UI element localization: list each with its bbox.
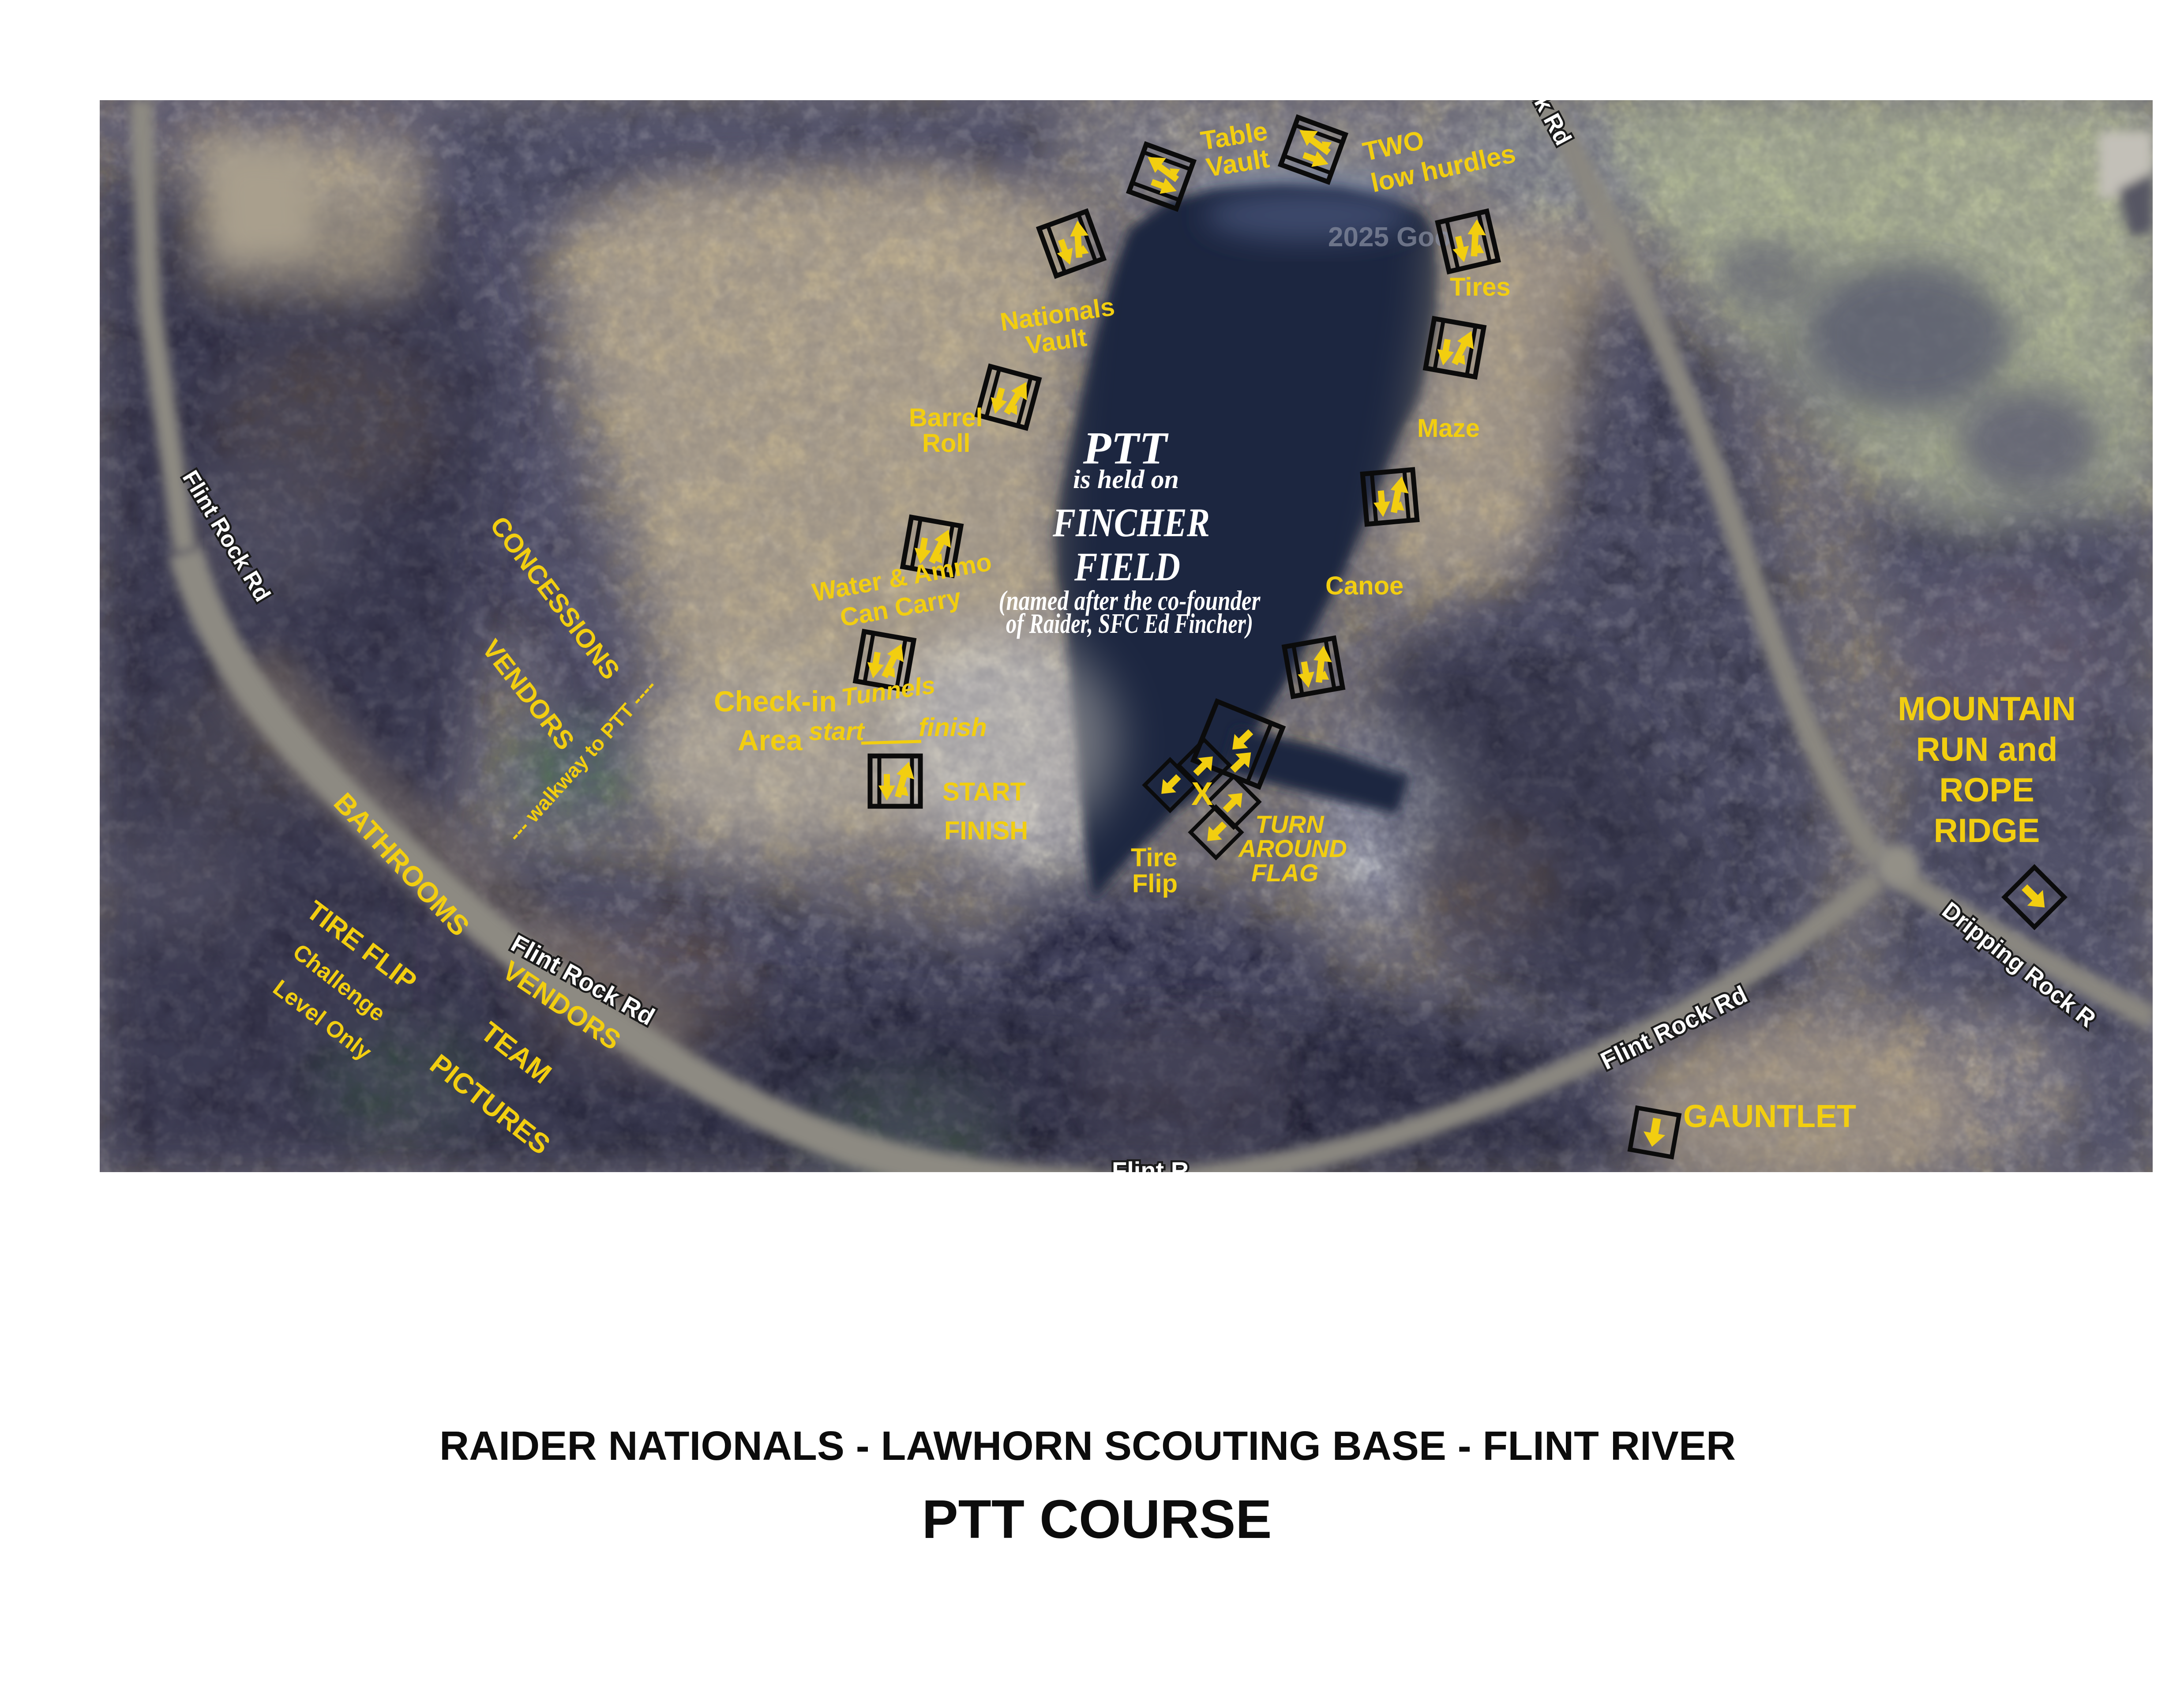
svg-text:Tire: Tire: [1131, 843, 1177, 872]
svg-text:FLAG: FLAG: [1251, 859, 1318, 887]
svg-text:Flip: Flip: [1132, 869, 1178, 898]
svg-text:FINISH: FINISH: [944, 816, 1028, 845]
svg-text:Barrel: Barrel: [909, 403, 983, 432]
svg-text:Area: Area: [738, 724, 803, 756]
svg-text:of Raider, SFC Ed Fincher): of Raider, SFC Ed Fincher): [1006, 608, 1253, 639]
svg-text:Canoe: Canoe: [1325, 571, 1403, 600]
svg-text:Check-in: Check-in: [714, 685, 837, 718]
svg-text:AROUND: AROUND: [1238, 835, 1347, 862]
svg-text:Roll: Roll: [922, 429, 971, 458]
svg-text:Tires: Tires: [1450, 273, 1511, 301]
svg-text:PTT COURSE: PTT COURSE: [922, 1489, 1272, 1550]
svg-text:start: start: [809, 717, 865, 746]
svg-text:RAIDER NATIONALS - LAWHORN SCO: RAIDER NATIONALS - LAWHORN SCOUTING BASE…: [439, 1423, 1736, 1469]
svg-text:X: X: [1191, 775, 1213, 812]
svg-text:2025 Goo: 2025 Goo: [1328, 222, 1451, 252]
svg-text:ROPE: ROPE: [1939, 771, 2034, 809]
svg-text:FINCHER: FINCHER: [1052, 500, 1210, 545]
svg-text:is held on: is held on: [1073, 465, 1179, 494]
svg-text:RIDGE: RIDGE: [1934, 812, 2040, 850]
svg-text:Maze: Maze: [1417, 414, 1480, 443]
svg-text:MOUNTAIN: MOUNTAIN: [1898, 690, 2076, 728]
svg-text:finish: finish: [919, 713, 987, 742]
svg-text:GAUNTLET: GAUNTLET: [1683, 1099, 1856, 1134]
svg-text:FIELD: FIELD: [1074, 544, 1180, 589]
svg-text:TURN: TURN: [1255, 810, 1325, 838]
svg-text:START: START: [942, 778, 1026, 806]
svg-text:RUN and: RUN and: [1916, 731, 2058, 768]
